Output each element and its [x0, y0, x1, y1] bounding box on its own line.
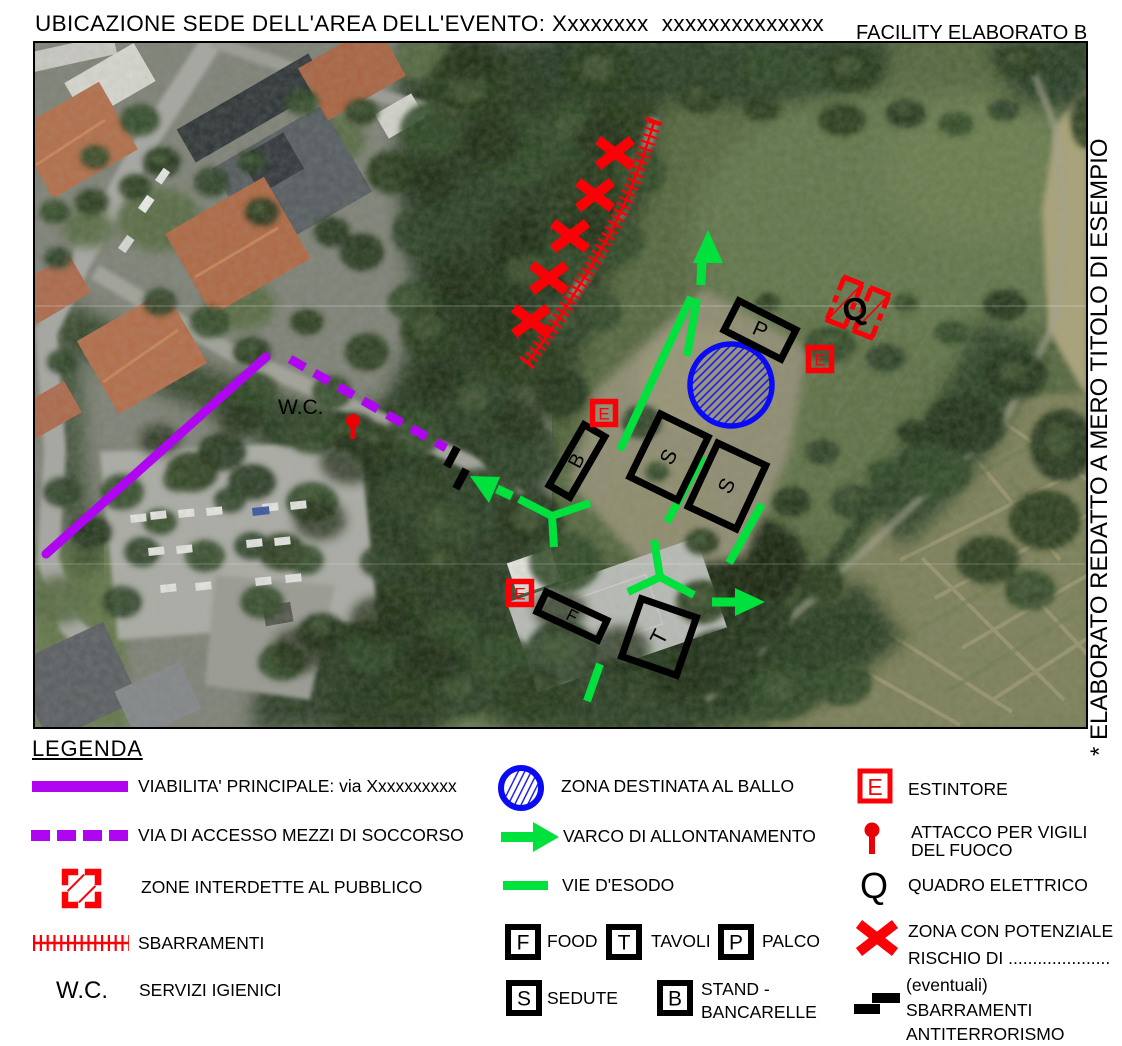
svg-text:F: F: [517, 932, 530, 955]
svg-text:B: B: [668, 988, 682, 1011]
svg-text:S: S: [517, 988, 531, 1011]
svg-text:P: P: [729, 932, 743, 955]
svg-text:E: E: [514, 585, 525, 604]
svg-text:W.C.: W.C.: [278, 396, 324, 419]
svg-text:E: E: [814, 351, 825, 370]
svg-text:E: E: [867, 774, 882, 800]
svg-text:E: E: [598, 405, 609, 424]
svg-text:T: T: [618, 932, 631, 955]
